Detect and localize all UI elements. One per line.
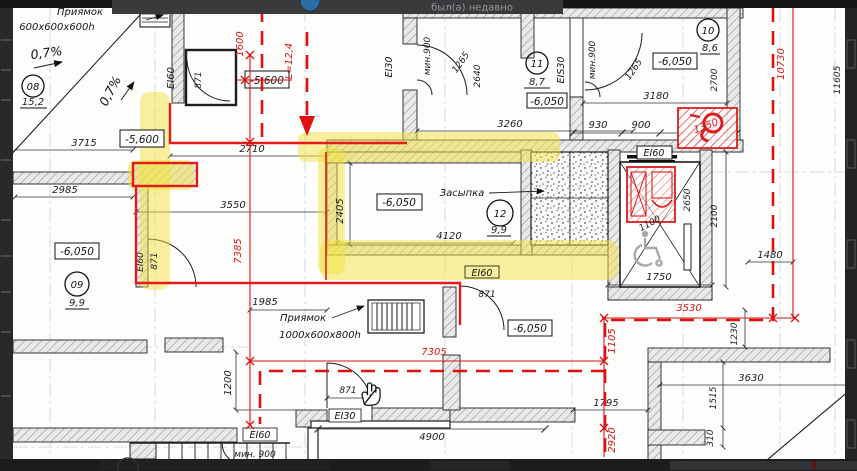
- fire-ei60: EI60: [136, 252, 146, 272]
- floor-plan-canvas[interactable]: -5,600 -5,600 -6,050 -6,050 -6,050 -6,05…: [0, 0, 857, 471]
- dim-1200: 1200: [223, 370, 234, 395]
- dim-2640: 2640: [473, 64, 483, 87]
- status-text: был(а) недавно: [431, 3, 513, 14]
- fire-ei60: EI60: [472, 268, 493, 279]
- dim-871: 871: [194, 71, 204, 88]
- room-area: 8,6: [702, 43, 718, 54]
- backfill-area: [531, 152, 608, 245]
- floor-plan-viewer: -5,600 -5,600 -6,050 -6,050 -6,050 -6,05…: [0, 0, 857, 471]
- dim-1105: 1105: [607, 328, 618, 353]
- bottom-overlay-bar[interactable]: [0, 458, 857, 471]
- pit-top-size: 600x600x600h: [19, 22, 94, 33]
- room-number: 11: [531, 59, 544, 70]
- dim-3530: 3530: [676, 303, 701, 314]
- pit-top-title: Приямок: [57, 7, 103, 18]
- room-number: 12: [494, 209, 507, 220]
- fire-eis30: EIS30: [556, 57, 567, 84]
- level-value: -6,050: [60, 246, 94, 258]
- min-900: мин.900: [588, 40, 598, 79]
- dim-4120: 4120: [436, 231, 461, 242]
- level-value: -5,600: [250, 75, 284, 87]
- dim-7305: 7305: [421, 347, 446, 358]
- dim-3180: 3180: [643, 91, 668, 102]
- dim-2405: 2405: [335, 198, 346, 223]
- level-value: -6,050: [530, 96, 564, 108]
- fire-ei60: EI60: [166, 67, 177, 89]
- right-frame: [845, 8, 857, 471]
- pit-bottom-title: Приямок: [280, 313, 326, 324]
- dim-871: 871: [150, 252, 160, 269]
- level-value: -6,050: [382, 197, 416, 209]
- dim-871: 871: [339, 386, 356, 396]
- left-frame: [0, 8, 13, 471]
- room-number: 09: [71, 280, 84, 291]
- dim-310: 310: [706, 429, 716, 446]
- dim-3715: 3715: [71, 138, 96, 149]
- dim-2710: 2710: [239, 144, 264, 155]
- dim-7385: 7385: [233, 238, 244, 263]
- counterweight: [684, 224, 691, 270]
- room-area: 8,7: [529, 77, 546, 88]
- backfill-label: Засыпка: [440, 188, 485, 199]
- fire-ei60: EI60: [250, 430, 271, 441]
- dim-2985: 2985: [52, 185, 77, 196]
- dim-2700: 2700: [710, 68, 720, 91]
- dim-1600: 1600: [235, 31, 246, 56]
- dim-1750: 1750: [646, 272, 671, 283]
- fire-ei30: EI30: [335, 411, 356, 422]
- dim-2100: 2100: [710, 204, 720, 227]
- room-area: 9,9: [491, 225, 507, 236]
- level-value: -6,050: [513, 323, 547, 335]
- fire-ei60: EI60: [644, 148, 665, 159]
- top-overlay-bar[interactable]: был(а) недавно: [112, 0, 563, 14]
- level-value: -6,050: [658, 56, 692, 68]
- dim-4900: 4900: [419, 432, 444, 443]
- dim-10730: 10730: [776, 48, 787, 80]
- dim-2650: 2650: [683, 188, 693, 211]
- route-length-label: L=12,4: [284, 43, 295, 79]
- dim-900: 900: [631, 120, 650, 131]
- dim-1985: 1985: [252, 297, 277, 308]
- level-value: -5,600: [125, 134, 159, 146]
- room-number: 10: [702, 26, 715, 37]
- room-area: 9,9: [69, 298, 85, 309]
- dim-3260: 3260: [497, 119, 522, 130]
- room-number: 08: [27, 82, 40, 93]
- dim-3630: 3630: [738, 373, 763, 384]
- dim-1480: 1480: [757, 250, 782, 261]
- dim-1230: 1230: [730, 322, 740, 345]
- dim-1515: 1515: [709, 386, 719, 409]
- dim-2920: 2920: [607, 427, 618, 452]
- dim-3550: 3550: [220, 200, 245, 211]
- min-900-floor: мин. 900: [234, 450, 276, 460]
- elevator-machine-symbol: [627, 167, 675, 222]
- pit-bottom-size: 1000x600x800h: [279, 330, 361, 341]
- dim-11605: 11605: [833, 65, 843, 94]
- min-900: мин.900: [423, 36, 433, 75]
- fire-ei30: EI30: [384, 57, 395, 78]
- dim-871: 871: [478, 290, 495, 300]
- room-area: 15,2: [22, 97, 44, 108]
- dim-930: 930: [588, 120, 607, 131]
